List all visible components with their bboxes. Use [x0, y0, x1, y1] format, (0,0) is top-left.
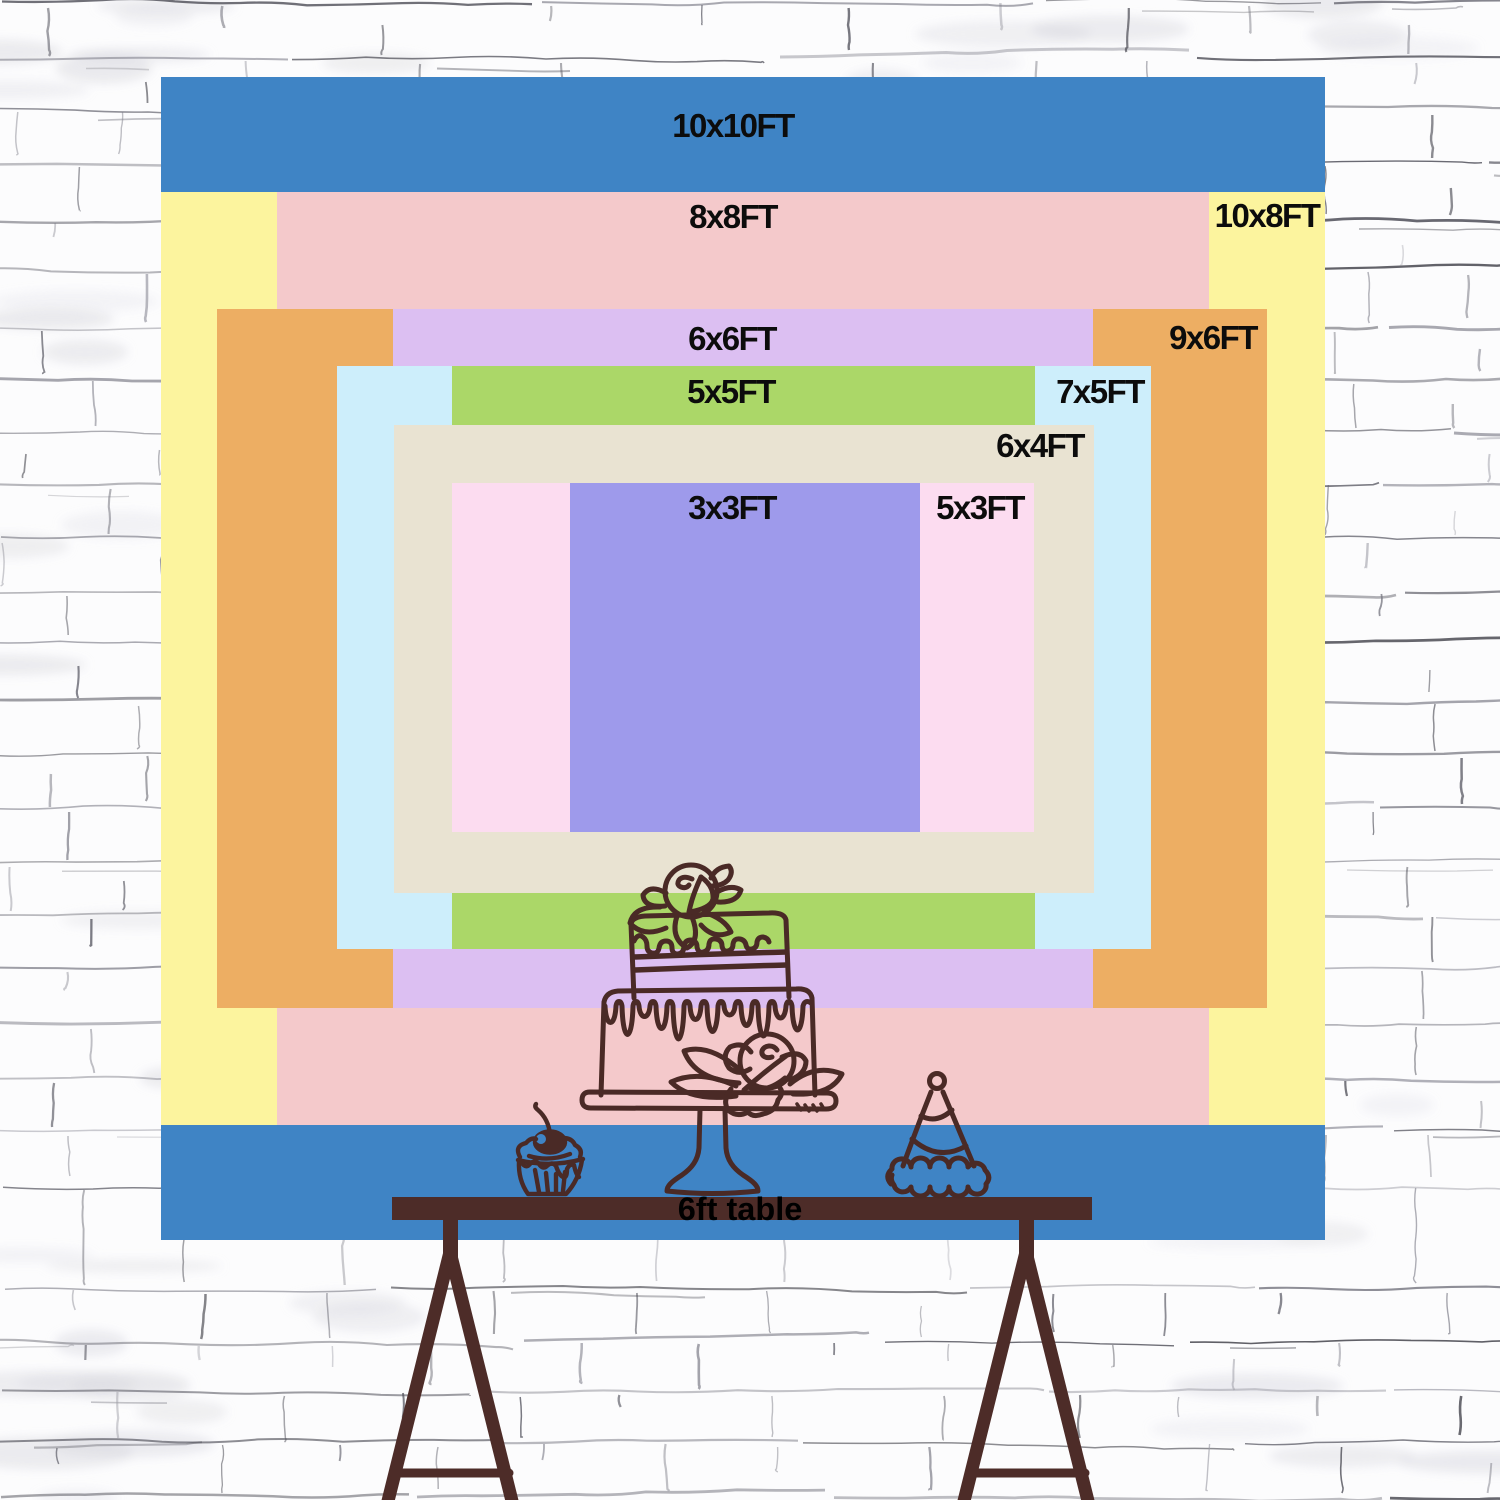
svg-text:6ft table: 6ft table — [678, 1191, 803, 1227]
